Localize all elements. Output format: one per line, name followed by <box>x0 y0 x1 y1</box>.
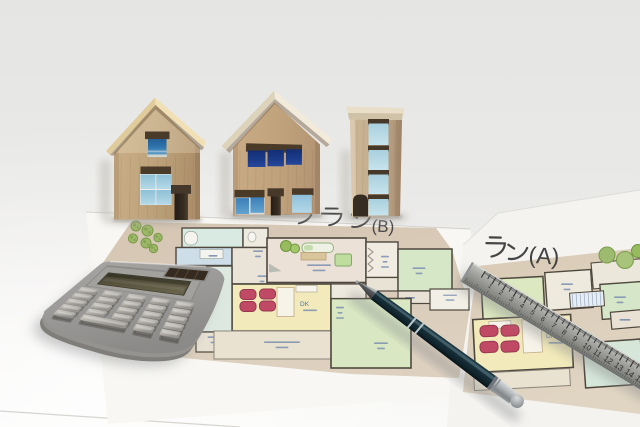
svg-text:(A): (A) <box>528 242 560 270</box>
svg-text:DK: DK <box>300 301 310 308</box>
